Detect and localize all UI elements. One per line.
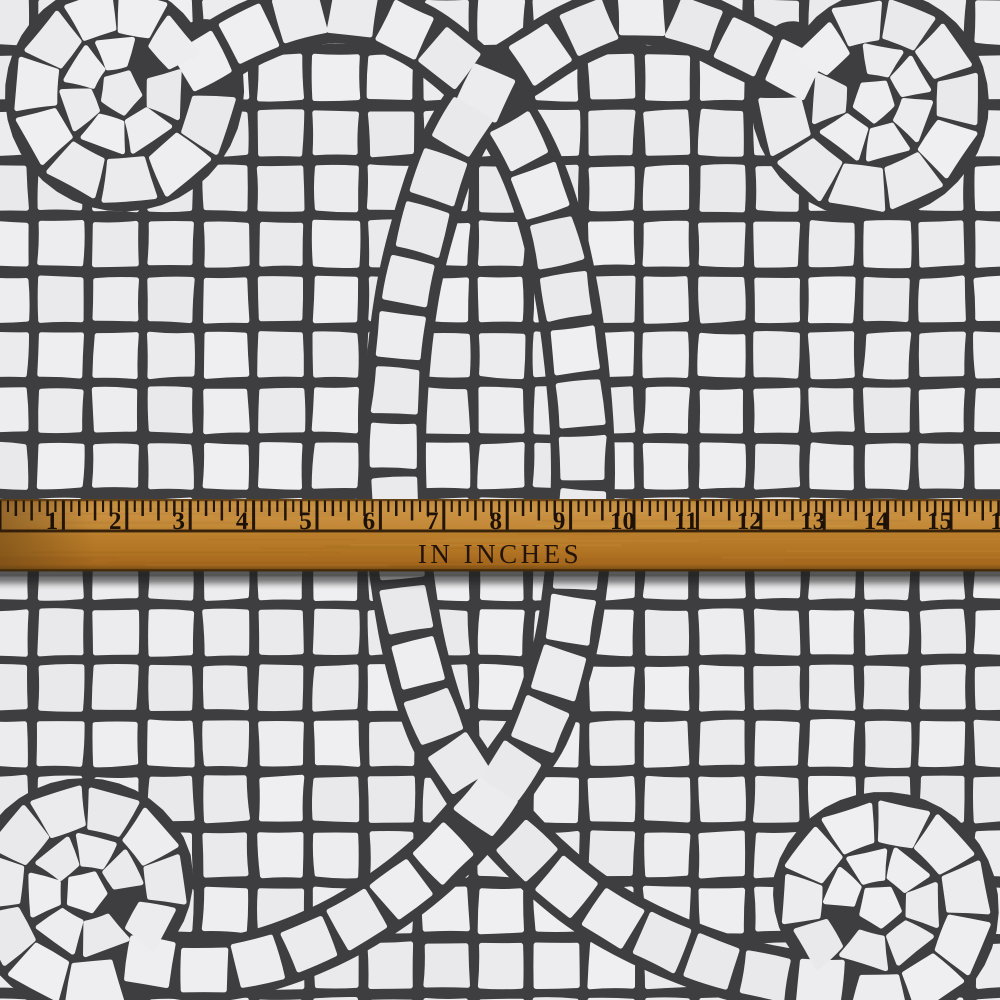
svg-text:8: 8 (489, 508, 502, 535)
svg-text:15: 15 (927, 508, 952, 535)
svg-text:9: 9 (553, 508, 566, 535)
svg-text:11: 11 (674, 508, 698, 535)
svg-text:2: 2 (109, 508, 122, 535)
svg-text:6: 6 (363, 508, 376, 535)
svg-text:14: 14 (864, 508, 890, 535)
svg-text:12: 12 (737, 508, 762, 535)
svg-text:10: 10 (610, 508, 635, 535)
svg-text:4: 4 (236, 508, 249, 535)
svg-text:5: 5 (299, 508, 312, 535)
svg-text:1: 1 (46, 508, 59, 535)
svg-text:13: 13 (800, 508, 825, 535)
svg-text:16: 16 (990, 508, 1000, 535)
svg-text:7: 7 (426, 508, 439, 535)
svg-text:IN INCHES: IN INCHES (418, 539, 582, 569)
svg-text:3: 3 (172, 508, 185, 535)
